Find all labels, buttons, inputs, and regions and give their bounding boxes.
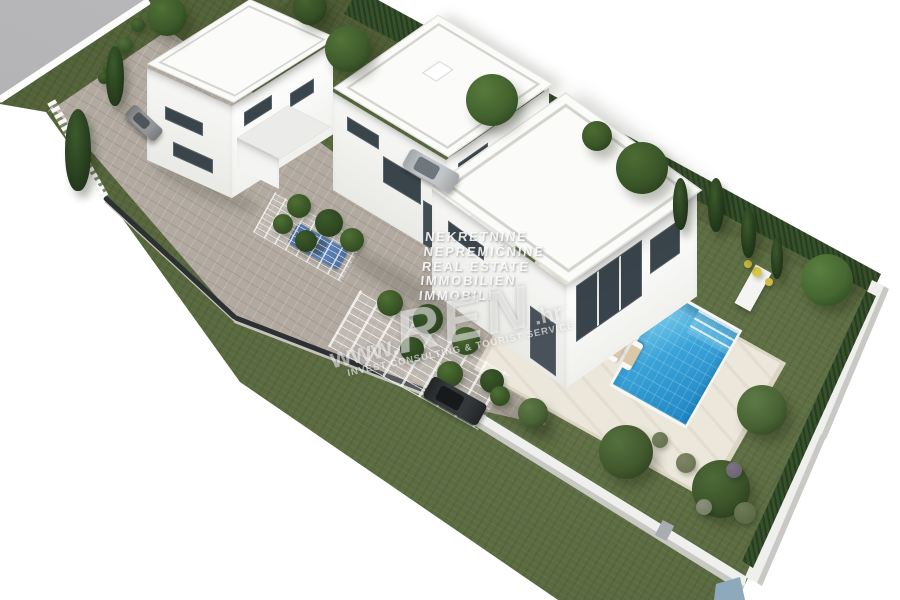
pergola-vines xyxy=(490,386,510,406)
window xyxy=(347,116,379,149)
flower-patch xyxy=(765,278,773,286)
window xyxy=(650,219,680,274)
watermark-language-line: NEKRETNINE xyxy=(424,230,547,245)
shrub-purple xyxy=(726,462,742,478)
cypress-tree xyxy=(741,208,756,258)
shrub xyxy=(652,432,668,448)
render-canvas: NEKRETNINE NEPREMIČNINE REAL ESTATE IMMO… xyxy=(0,0,900,600)
tree xyxy=(466,74,518,126)
pergola-vines xyxy=(273,214,293,234)
pergola-vines xyxy=(287,194,311,218)
olive-tree xyxy=(737,385,787,435)
flower-patch xyxy=(752,267,762,277)
roof-hatch xyxy=(422,61,454,82)
shrub xyxy=(734,502,756,524)
pergola-vines xyxy=(340,228,364,252)
window xyxy=(173,142,213,174)
shrub xyxy=(696,499,712,515)
cypress-tree xyxy=(673,178,688,230)
olive-tree xyxy=(599,425,653,479)
cypress-tree xyxy=(708,178,724,232)
window xyxy=(290,78,314,107)
pergola-vines xyxy=(295,230,317,252)
cypress-tree xyxy=(65,109,91,191)
cypress-tree xyxy=(771,237,783,279)
window xyxy=(165,106,203,136)
tree xyxy=(582,121,612,151)
tree xyxy=(616,142,668,194)
pergola-vines xyxy=(315,209,343,237)
roadside-bush xyxy=(131,18,145,32)
shrub xyxy=(676,453,696,473)
tree xyxy=(801,254,853,306)
watermark-language-line: NEPREMIČNINE xyxy=(423,245,546,260)
cypress-tree xyxy=(106,46,124,106)
olive-tree xyxy=(518,398,548,428)
tree xyxy=(325,26,371,72)
flower-patch xyxy=(744,260,752,268)
glazing-mullion xyxy=(597,271,599,326)
glazing-mullion xyxy=(619,255,621,310)
watermark-language-line: REAL ESTATE xyxy=(421,260,544,275)
